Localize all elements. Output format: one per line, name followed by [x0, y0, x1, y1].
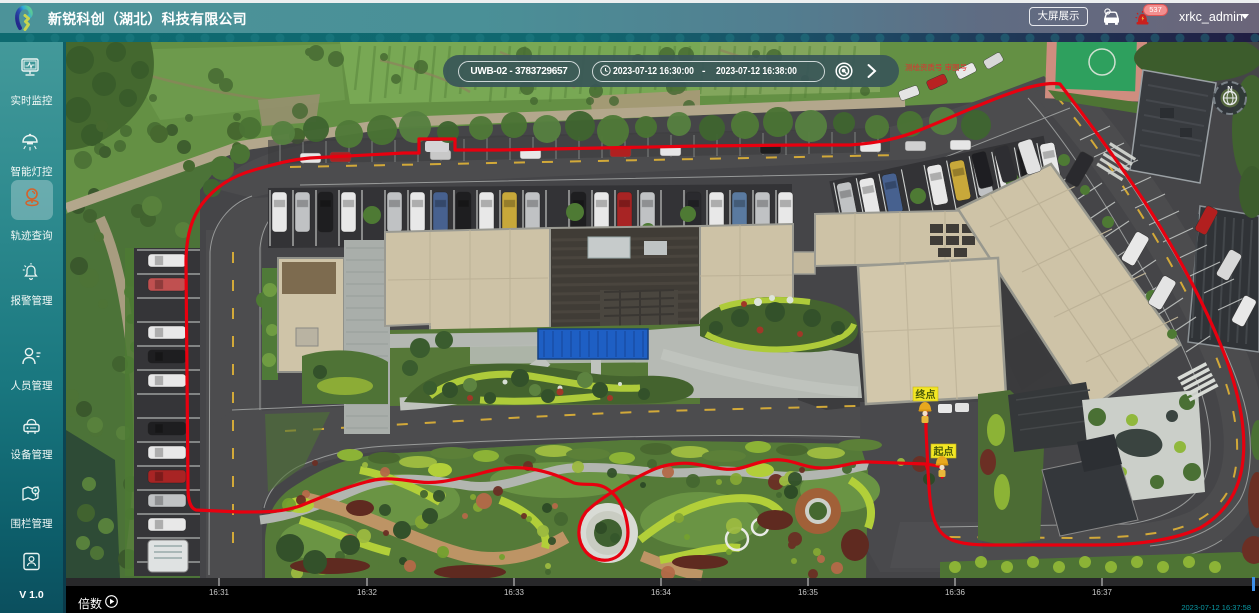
- svg-text:测绘资质号 审图号: 测绘资质号 审图号: [905, 62, 967, 72]
- svg-text:2023-07-12 16:37:58: 2023-07-12 16:37:58: [1181, 603, 1251, 612]
- svg-text:16:36: 16:36: [945, 588, 966, 597]
- svg-text:16:34: 16:34: [651, 588, 672, 597]
- svg-text:起点: 起点: [933, 445, 954, 458]
- svg-text:16:37: 16:37: [1092, 588, 1113, 597]
- svg-text:N: N: [1227, 84, 1232, 93]
- svg-text:终点: 终点: [916, 388, 936, 401]
- svg-text:16:31: 16:31: [209, 588, 230, 597]
- svg-text:16:35: 16:35: [798, 588, 819, 597]
- svg-text:16:32: 16:32: [357, 588, 378, 597]
- svg-text:16:33: 16:33: [504, 588, 525, 597]
